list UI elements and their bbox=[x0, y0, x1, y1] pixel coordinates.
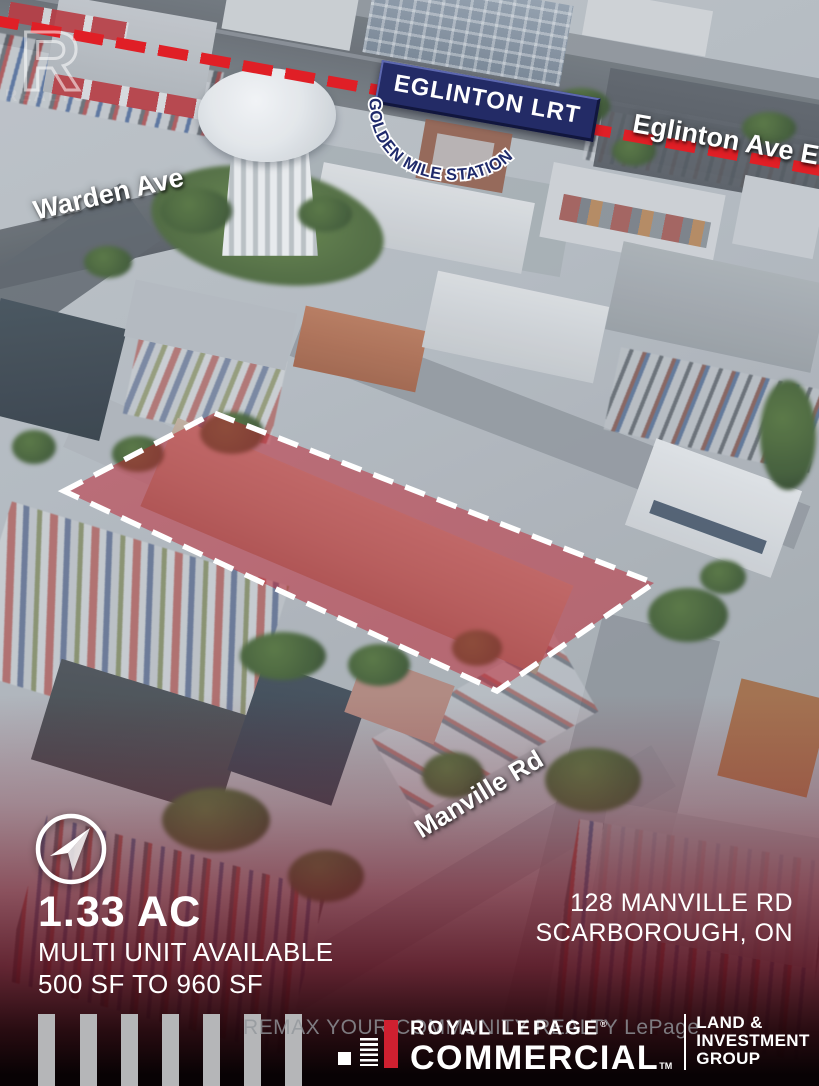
compass-arrow-lower bbox=[68, 828, 90, 872]
logo-stripes bbox=[360, 1038, 378, 1066]
group-line1: LAND & bbox=[696, 1014, 810, 1032]
listing-flyer: Warden Ave Eglinton Ave E Manville Rd EG… bbox=[0, 0, 819, 1086]
royal-lepage-bar-mark-icon bbox=[336, 1012, 404, 1072]
royal-lepage-commercial-logo: ROYAL LEPAGE® COMMERCIALTM LAND & INVEST… bbox=[336, 1012, 810, 1083]
station-arc-text: GOLDEN MILE STATION bbox=[366, 98, 517, 184]
property-polygon bbox=[64, 413, 654, 691]
realtor-monogram-letter: R bbox=[20, 14, 81, 102]
lot-size-text: 1.33 AC bbox=[38, 888, 334, 936]
brand-division-line: COMMERCIALTM bbox=[410, 1041, 672, 1083]
brand-name-text: ROYAL LEPAGE bbox=[410, 1018, 600, 1040]
navigation-arrow-icon bbox=[28, 806, 114, 892]
footer-bar bbox=[162, 1014, 179, 1086]
footer-bar bbox=[203, 1014, 220, 1086]
property-address: 128 MANVILLE RD SCARBOROUGH, ON bbox=[535, 888, 793, 948]
availability-text: MULTI UNIT AVAILABLE bbox=[38, 936, 334, 968]
brand-registered-mark: ® bbox=[600, 1019, 607, 1029]
unit-range-text: 500 SF TO 960 SF bbox=[38, 968, 334, 1000]
group-line3: GROUP bbox=[696, 1050, 810, 1068]
logo-red-bar bbox=[384, 1020, 398, 1068]
brand-divider bbox=[684, 1014, 686, 1070]
footer-bar bbox=[38, 1014, 55, 1086]
brand-name-line: ROYAL LEPAGE® bbox=[410, 1012, 672, 1041]
realtor-r-monogram-icon: R bbox=[4, 10, 104, 102]
brand-wordmark: ROYAL LEPAGE® COMMERCIALTM bbox=[410, 1012, 672, 1083]
footer-bar bbox=[121, 1014, 138, 1086]
group-line2: INVESTMENT bbox=[696, 1032, 810, 1050]
brand-division-text: COMMERCIAL bbox=[410, 1039, 659, 1077]
brand-trademark: TM bbox=[659, 1061, 672, 1071]
footer-bar bbox=[80, 1014, 97, 1086]
listing-summary: 1.33 AC MULTI UNIT AVAILABLE 500 SF TO 9… bbox=[38, 888, 334, 1000]
address-line2: SCARBOROUGH, ON bbox=[535, 918, 793, 948]
svg-text:GOLDEN MILE STATION: GOLDEN MILE STATION bbox=[366, 98, 517, 184]
address-line1: 128 MANVILLE RD bbox=[535, 888, 793, 918]
logo-square bbox=[338, 1052, 351, 1065]
golden-mile-station-arc-label: GOLDEN MILE STATION bbox=[348, 84, 568, 209]
land-investment-group-label: LAND & INVESTMENT GROUP bbox=[696, 1014, 810, 1068]
